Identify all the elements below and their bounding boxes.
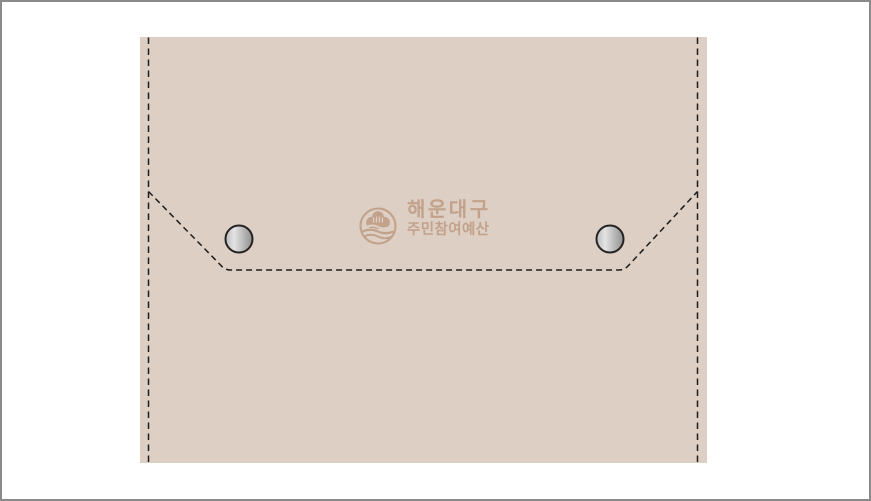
snap-button-left-icon bbox=[226, 226, 253, 253]
logo-org-name: 해운대구 bbox=[407, 200, 587, 220]
snap-button-right-icon bbox=[597, 226, 624, 253]
logo-wordmark: 해운대구 주민참여예산 bbox=[407, 200, 587, 238]
logo-program-name: 주민참여예산 bbox=[407, 223, 587, 238]
mockup-canvas: 해운대구 주민참여예산 bbox=[0, 0, 871, 501]
pouch-overlay-graphics bbox=[2, 2, 871, 501]
haeundae-gu-emblem-icon bbox=[361, 209, 396, 244]
